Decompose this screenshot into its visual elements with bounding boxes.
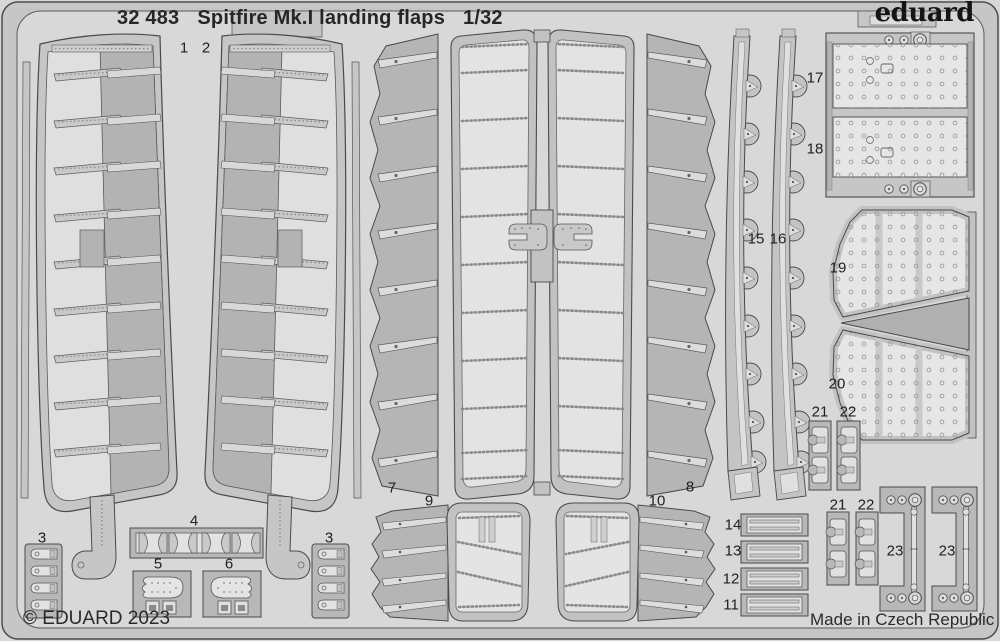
part-number-label: 10: [649, 493, 666, 510]
sheet-header: 32 483 Spitfire Mk.I landing flaps 1/32: [117, 7, 503, 30]
part-number-label: 16: [770, 231, 787, 248]
part-number-label: 2: [202, 40, 210, 57]
part-number-label: 3: [325, 530, 333, 547]
eduard-logo: eduard: [875, 0, 974, 28]
part-number-label: 19: [830, 260, 847, 277]
sheet-title: Spitfire Mk.I landing flaps: [197, 7, 445, 30]
catalog-number: 32 483: [117, 7, 179, 30]
part-10-flap-section: [556, 503, 715, 621]
part-number-label: 22: [858, 497, 875, 514]
part-number-label: 23: [887, 543, 904, 560]
part-number-label: 6: [225, 556, 233, 573]
part-number-label: 21: [812, 404, 829, 421]
scale-label: 1/32: [463, 7, 503, 30]
part-number-label: 8: [686, 479, 694, 496]
part-number-label: 15: [748, 231, 765, 248]
part-number-label: 7: [388, 480, 396, 497]
part-6-fitting: [203, 571, 261, 617]
part-number-label: 23: [939, 543, 956, 560]
part-number-label: 11: [723, 597, 739, 614]
part-17-18-plates: [826, 32, 974, 197]
part-number-label: 22: [840, 404, 857, 421]
part-number-label: 1: [180, 40, 188, 57]
part-4-strip: [130, 528, 263, 558]
part-3-tabs: [312, 544, 349, 618]
part-number-label: 5: [154, 556, 162, 573]
pe-fret-sheet: 32 483 Spitfire Mk.I landing flaps 1/32 …: [0, 0, 1000, 641]
part-9-flap-section: [371, 503, 530, 621]
part-3-tabs: [25, 544, 62, 618]
part-number-label: 3: [38, 530, 46, 547]
made-in-text: Made in Czech Republic: [810, 610, 994, 630]
fret-artwork: [0, 0, 1000, 641]
part-number-label: 9: [425, 493, 433, 510]
part-number-label: 21: [830, 497, 847, 514]
part-number-label: 12: [723, 571, 740, 588]
part-number-label: 4: [190, 513, 198, 530]
part-number-label: 20: [829, 376, 846, 393]
part-number-label: 18: [807, 141, 824, 158]
copyright-text: © EDUARD 2023: [23, 608, 170, 630]
part-number-label: 13: [725, 543, 742, 560]
part-number-label: 14: [725, 517, 742, 534]
part-number-label: 17: [807, 70, 824, 87]
